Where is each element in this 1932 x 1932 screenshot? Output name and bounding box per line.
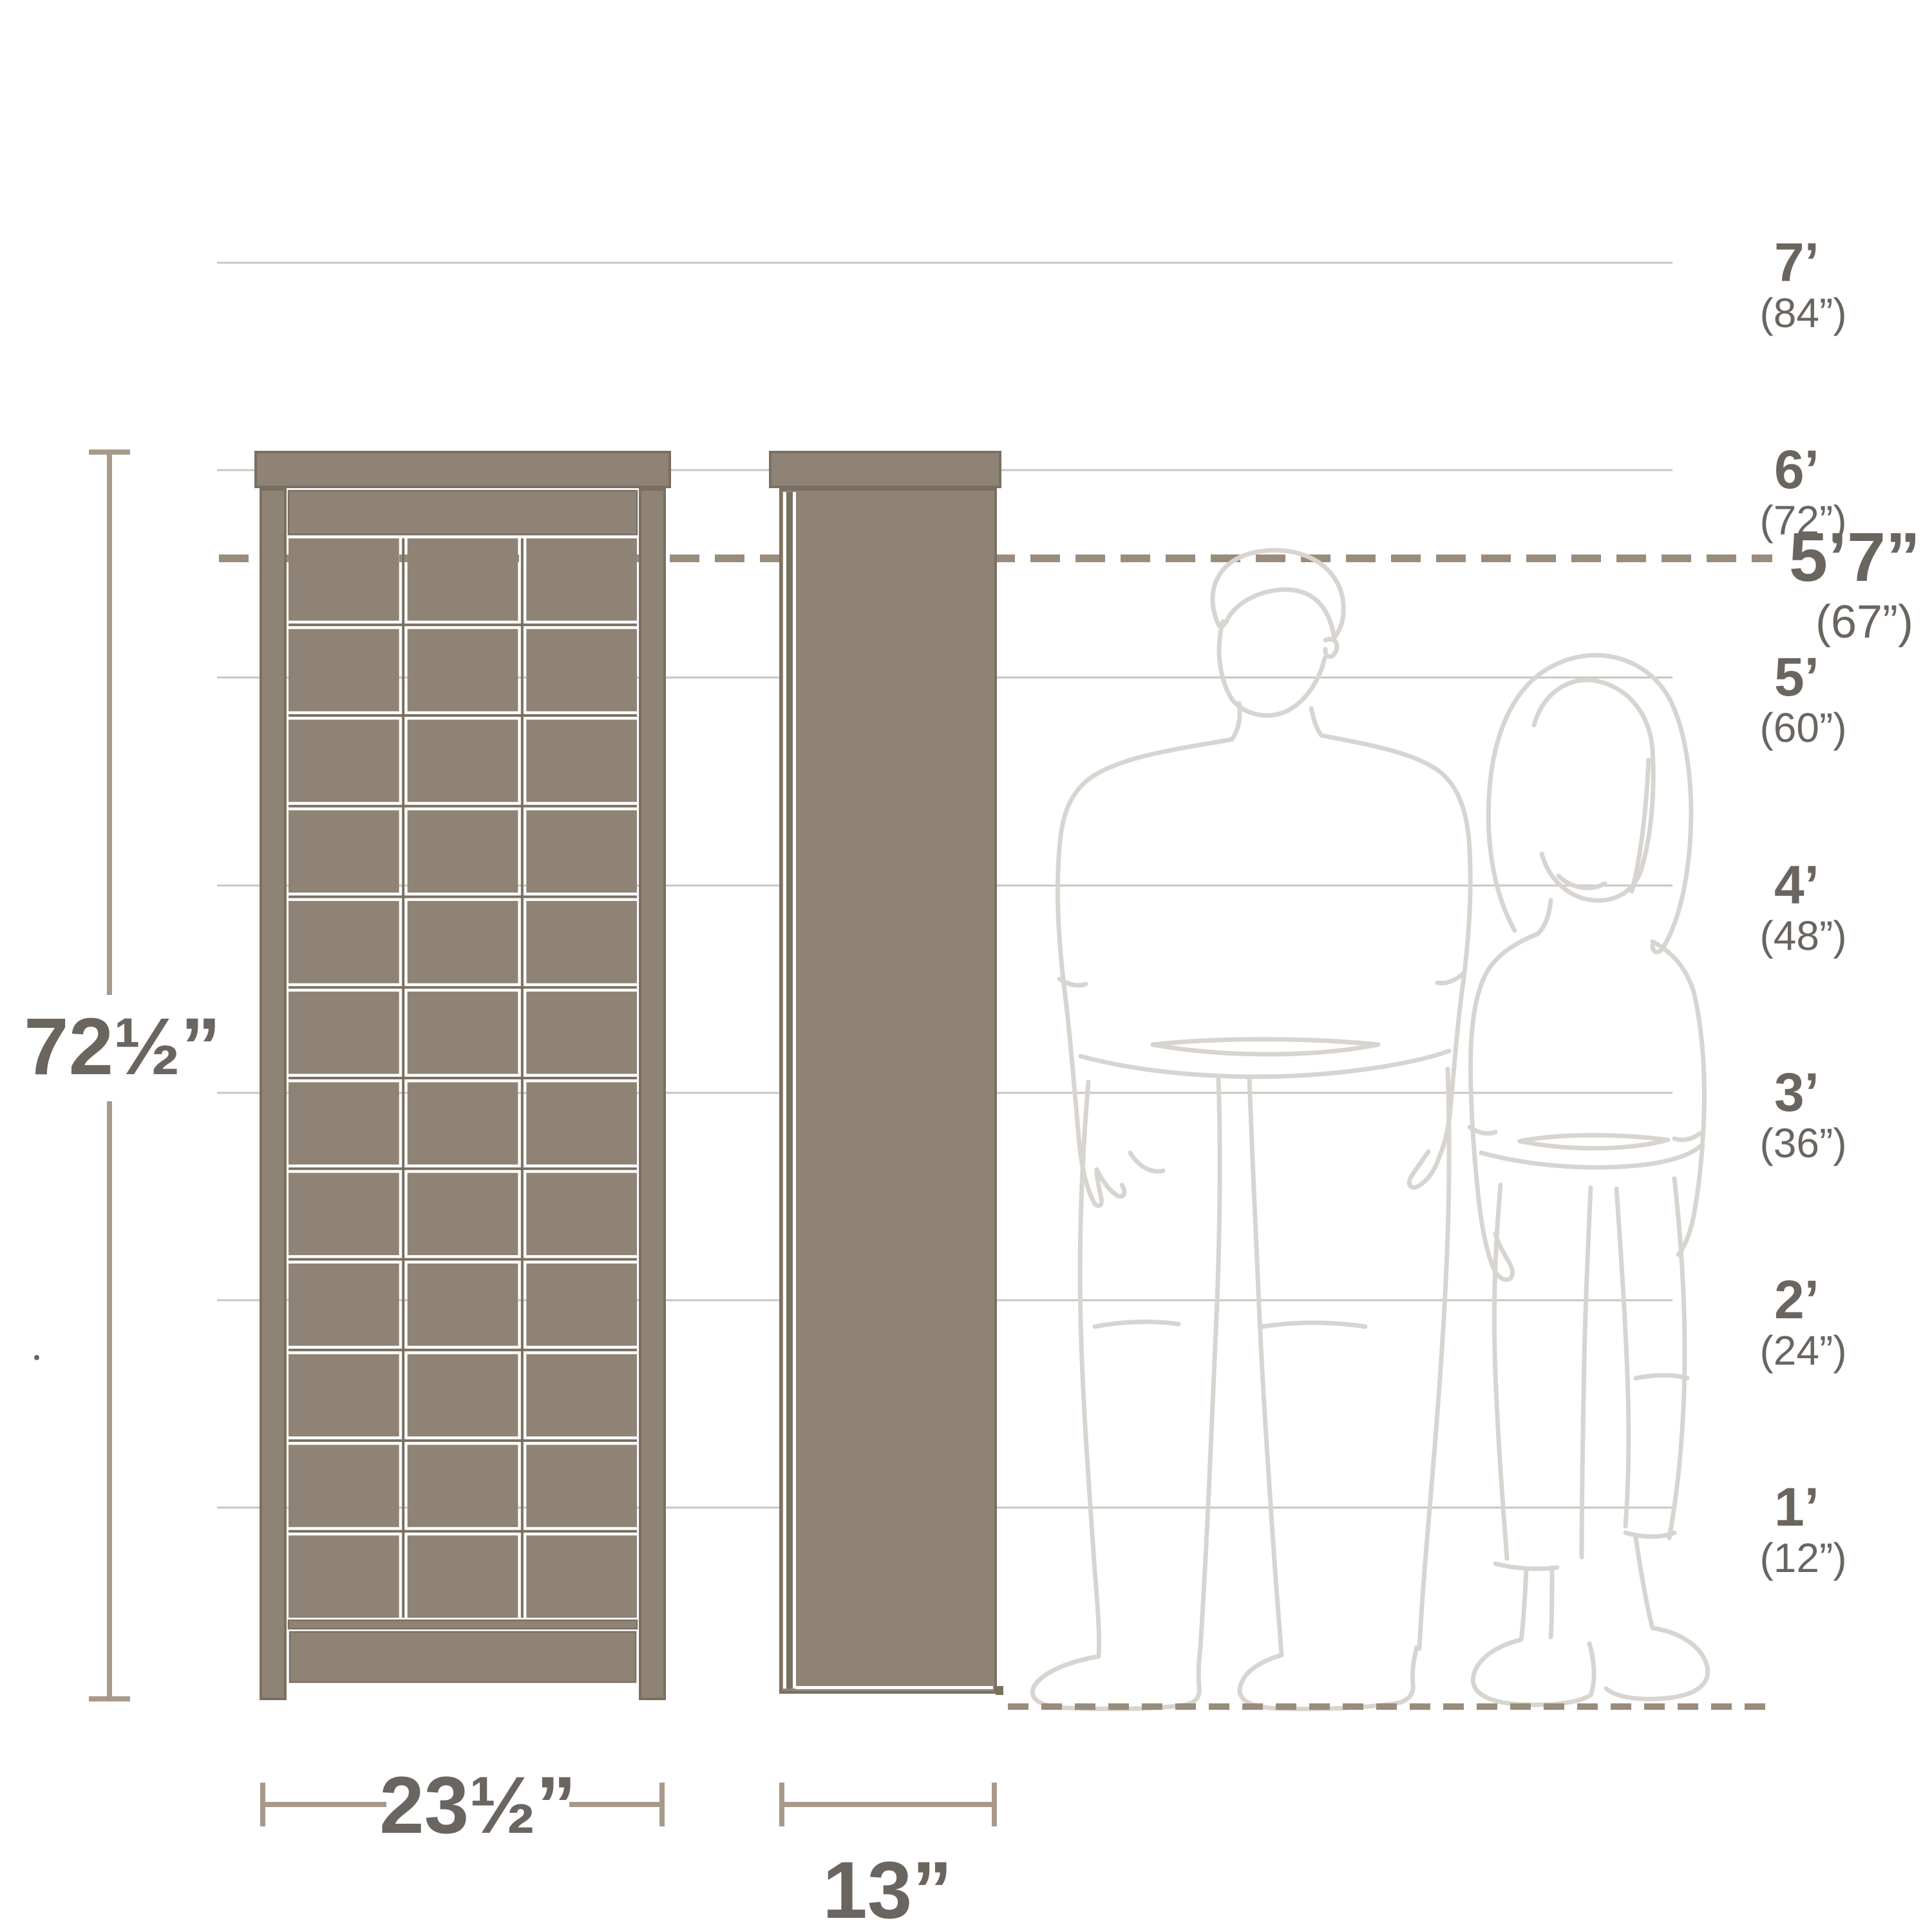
- man-left-knee-crease: [1095, 1322, 1179, 1327]
- scale-feet-label: 2’: [1774, 1269, 1819, 1330]
- man-neck-right: [1311, 708, 1321, 735]
- man-left-leg-inner: [1200, 1079, 1220, 1646]
- cubby-cell: [526, 1445, 637, 1528]
- cubby-grid: [289, 538, 637, 1618]
- cubby-cell: [526, 901, 637, 983]
- cubby-cell: [526, 1354, 637, 1437]
- woman-knee-crease: [1636, 1376, 1687, 1379]
- woman-right-pant-hem: [1625, 1533, 1674, 1537]
- man-hair: [1213, 550, 1343, 638]
- cubby-cell: [526, 1173, 637, 1255]
- cubby-cell: [289, 1445, 399, 1528]
- man-face: [1219, 621, 1325, 715]
- depth-dimension: 13”: [782, 1783, 994, 1932]
- man-outline: [1032, 550, 1470, 1709]
- width-dimension-label: 23½”: [379, 1761, 576, 1850]
- man-hem-detail: [1153, 1039, 1378, 1054]
- scale-feet-label: 6’: [1774, 439, 1819, 500]
- scale-feet-label: 3’: [1774, 1062, 1819, 1122]
- height-dimension-label: 72½”: [24, 1002, 221, 1092]
- cubby-cell: [526, 629, 637, 712]
- woman-outline: [1470, 655, 1708, 1705]
- side-inner-line-bottom: [796, 1686, 993, 1689]
- cubby-cell: [408, 901, 518, 983]
- scale-feet-label: 5’: [1774, 647, 1819, 707]
- side-inner-line-right: [793, 492, 796, 1689]
- man-left-shoe: [1032, 1647, 1200, 1709]
- cubby-cell: [526, 1535, 637, 1618]
- cubby-cell: [289, 1083, 399, 1165]
- cubby-cell: [408, 629, 518, 712]
- front-thin-rail: [289, 1620, 637, 1629]
- stray-dot: [34, 1355, 39, 1360]
- cubby-cell: [526, 1083, 637, 1165]
- cubby-cell: [289, 1264, 399, 1346]
- woman-right-sneaker: [1606, 1628, 1708, 1699]
- woman-right-leg-inner: [1616, 1189, 1629, 1526]
- dimension-diagram: 7’ (84”) 6’ (72”) 5’ (60”) 4’ (48”) 3’ (…: [0, 0, 1932, 1932]
- front-top-rail: [289, 491, 637, 535]
- cubby-cell: [289, 1173, 399, 1255]
- scale-inch-label: (48”): [1759, 913, 1846, 959]
- man-ear: [1325, 639, 1337, 656]
- woman-left-sneaker: [1473, 1640, 1594, 1705]
- side-top-cap: [770, 452, 1000, 487]
- cubby-cell: [289, 1354, 399, 1437]
- cubby-cell: [408, 720, 518, 802]
- width-dimension: 23½”: [263, 1761, 662, 1850]
- scale-feet-label: 7’: [1774, 232, 1819, 292]
- side-back-foot: [996, 1686, 1003, 1695]
- cubby-cell: [526, 992, 637, 1074]
- side-front-edge-strip: [786, 492, 793, 1689]
- cubby-cell: [526, 538, 637, 621]
- front-kick-rail: [290, 1632, 636, 1682]
- scale-inch-label: (60”): [1759, 705, 1846, 751]
- person-height-feet-label: 5’7”: [1789, 518, 1920, 596]
- scale-feet-label: 1’: [1774, 1477, 1819, 1537]
- woman-left-ankle: [1521, 1567, 1552, 1640]
- cubby-cell: [408, 1535, 518, 1618]
- bookcase-side-view: [770, 452, 1003, 1695]
- cubby-cell: [289, 1535, 399, 1618]
- cubby-cell: [289, 810, 399, 893]
- cubby-cell: [408, 810, 518, 893]
- side-body: [781, 489, 996, 1692]
- scale-mark-7ft: 7’ (84”): [217, 232, 1847, 336]
- man-right-cuff: [1437, 974, 1463, 983]
- cubby-cell: [526, 810, 637, 893]
- scale-feet-label: 4’: [1774, 855, 1819, 915]
- woman-left-arm: [1471, 900, 1551, 1280]
- woman-hair-outer: [1488, 655, 1691, 952]
- cubby-cell: [289, 720, 399, 802]
- man-right-shoe: [1240, 1647, 1417, 1709]
- woman-left-leg-inner: [1582, 1188, 1591, 1557]
- man-neck-left: [1232, 703, 1240, 739]
- man-right-leg-inner: [1249, 1079, 1282, 1655]
- people-silhouettes: [1032, 550, 1707, 1709]
- cubby-cell: [289, 992, 399, 1074]
- cubby-cell: [408, 538, 518, 621]
- woman-left-leg-outer: [1494, 1185, 1507, 1558]
- cubby-cell: [289, 538, 399, 621]
- front-left-stile: [261, 489, 285, 1699]
- man-right-knee-crease: [1262, 1323, 1365, 1327]
- bookcase-front-view: [256, 452, 670, 1699]
- front-right-stile: [640, 489, 665, 1699]
- height-dimension: 72½”: [24, 452, 221, 1699]
- woman-hem-detail: [1520, 1135, 1668, 1148]
- side-inner-line-left: [783, 492, 786, 1689]
- cubby-cell: [526, 1264, 637, 1346]
- cubby-cell: [526, 720, 637, 802]
- scale-inch-label: (24”): [1759, 1327, 1846, 1374]
- cubby-cell: [408, 1354, 518, 1437]
- person-height-inch-label: (67”): [1815, 596, 1913, 648]
- scale-inch-label: (84”): [1759, 290, 1846, 336]
- woman-right-cuff: [1674, 1133, 1700, 1140]
- woman-right-ankle: [1636, 1538, 1653, 1628]
- woman-right-leg-outer: [1669, 1179, 1685, 1538]
- cubby-cell: [408, 1445, 518, 1528]
- scale-inch-label: (12”): [1759, 1535, 1846, 1581]
- cubby-cell: [289, 901, 399, 983]
- cubby-cell: [408, 1083, 518, 1165]
- front-top-cap: [256, 452, 670, 487]
- cubby-cell: [408, 992, 518, 1074]
- cubby-cell: [408, 1264, 518, 1346]
- depth-dimension-label: 13”: [822, 1846, 952, 1932]
- scale-inch-label: (36”): [1759, 1120, 1846, 1166]
- man-pocket-detail: [1130, 1153, 1163, 1171]
- cubby-cell: [289, 629, 399, 712]
- cubby-cell: [408, 1173, 518, 1255]
